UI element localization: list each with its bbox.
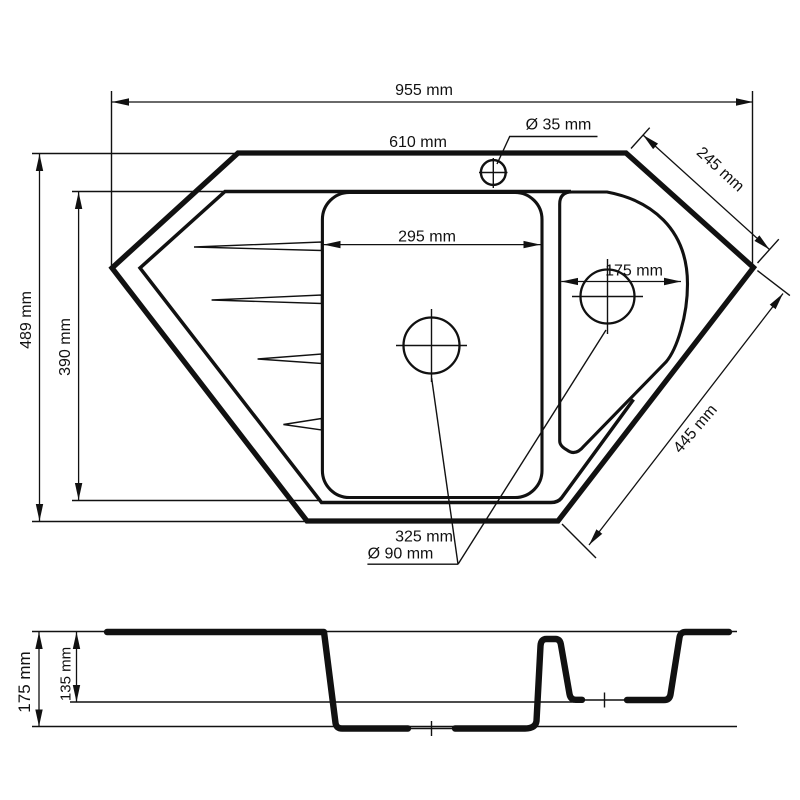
svg-text:610 mm: 610 mm (389, 134, 447, 151)
svg-text:325 mm: 325 mm (395, 529, 453, 546)
svg-text:Ø 35 mm: Ø 35 mm (526, 117, 592, 134)
svg-text:Ø 90 mm: Ø 90 mm (368, 546, 434, 563)
svg-text:489 mm: 489 mm (18, 291, 35, 349)
svg-text:390 mm: 390 mm (57, 318, 74, 376)
svg-text:955 mm: 955 mm (395, 82, 453, 99)
svg-text:295 mm: 295 mm (398, 229, 456, 246)
svg-text:175 mm: 175 mm (15, 651, 34, 712)
svg-text:175 mm: 175 mm (605, 263, 663, 280)
svg-text:135 mm: 135 mm (58, 647, 75, 701)
